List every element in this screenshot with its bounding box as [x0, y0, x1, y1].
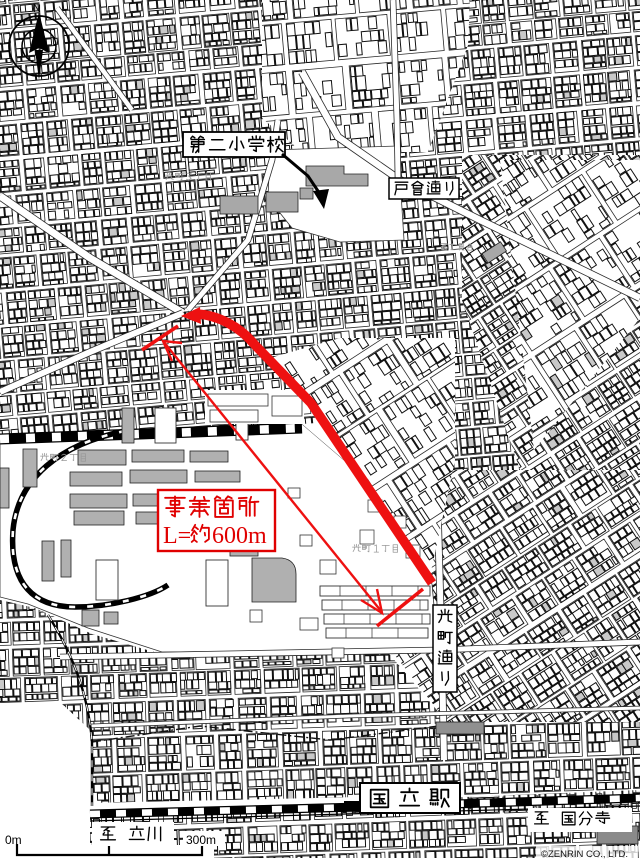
svg-text:0m: 0m — [5, 833, 22, 847]
svg-text:L=: L= — [163, 523, 191, 549]
svg-text:©ZENRIN CO., LTD.: ©ZENRIN CO., LTD. — [541, 849, 628, 860]
svg-text:300m: 300m — [186, 833, 216, 847]
svg-text:600m: 600m — [212, 523, 267, 549]
svg-text:N: N — [33, 3, 41, 15]
